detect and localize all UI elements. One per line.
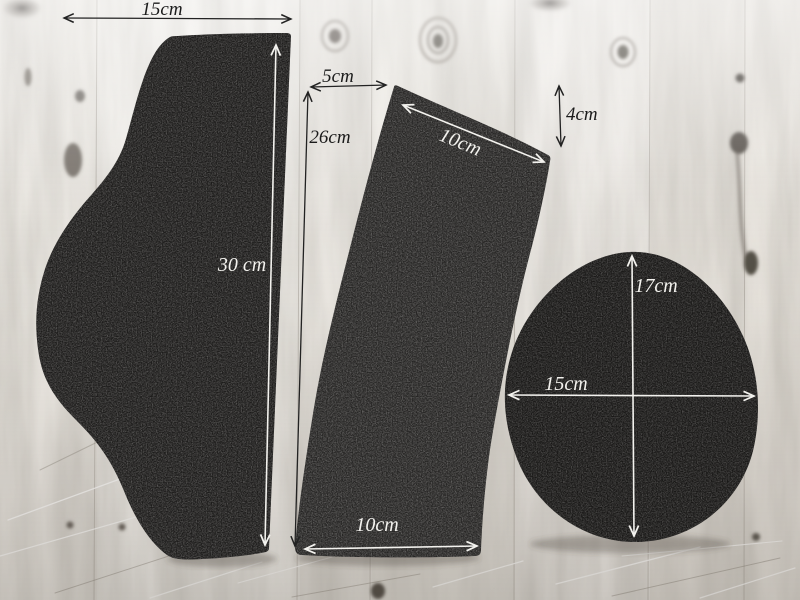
dimension-label: 10cm [355,514,398,536]
dimension-label: 17cm [634,275,677,297]
pattern-photo-canvas: 15cm 5cm 26cm 30 cm 10cm 4cm 17cm [0,0,800,600]
dimension-label: 4cm [566,104,598,125]
dimension-label: 5cm [322,66,354,87]
dimension-label: 30 cm [217,254,266,276]
dimension-label: 15cm [544,373,587,395]
annotated-sewing-pattern-photo: 15cm 5cm 26cm 30 cm 10cm 4cm 17cm [0,0,800,600]
dimension-label: 26cm [309,127,350,148]
dimension-arrow [509,395,754,396]
dimension-label: 15cm [141,0,182,20]
